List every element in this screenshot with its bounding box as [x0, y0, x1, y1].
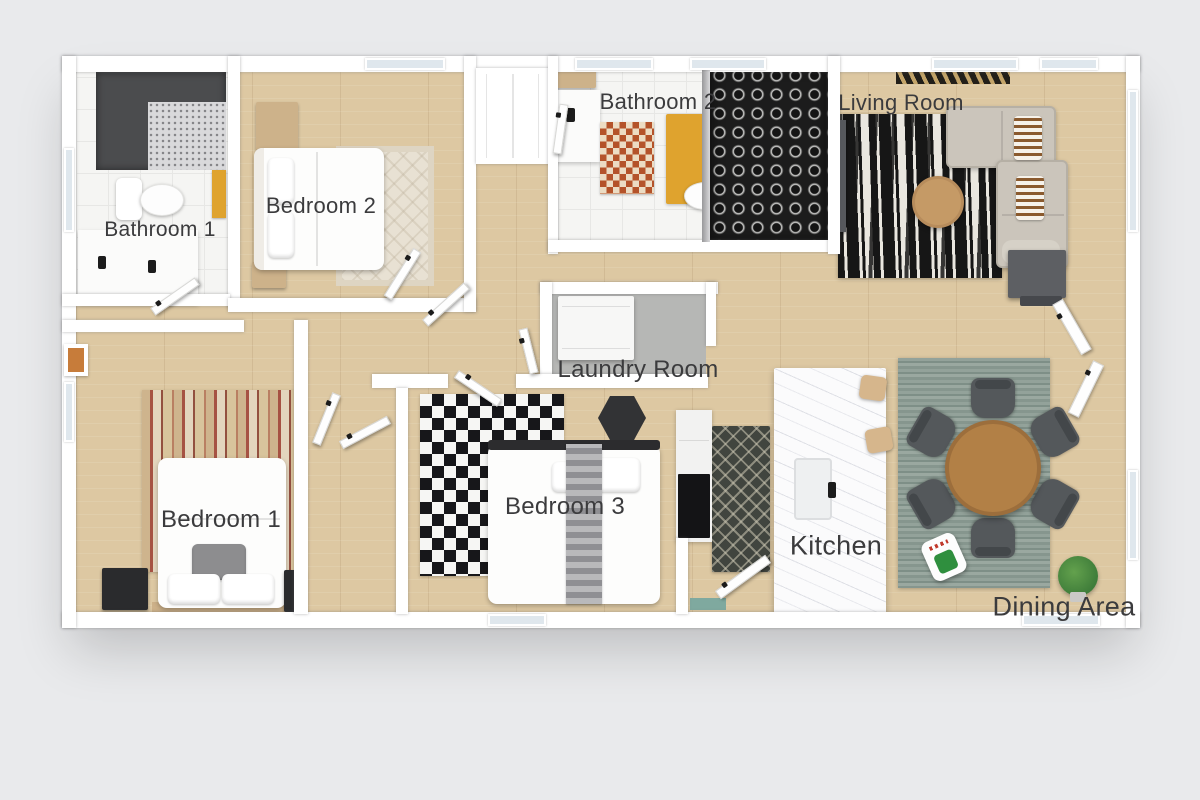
shower-1-tile-floor — [148, 102, 226, 170]
wall-outer-bottom — [62, 612, 1140, 628]
nightstand-wood — [256, 102, 298, 150]
island-sink — [794, 458, 832, 520]
high-chair-dots — [929, 539, 949, 551]
room-label-living-room: Living Room — [838, 90, 964, 116]
dining-chair — [971, 378, 1015, 418]
wall-segment — [548, 240, 838, 252]
window — [690, 58, 766, 70]
headboard — [254, 148, 264, 270]
cooktop-stove — [678, 474, 710, 538]
window — [1040, 58, 1098, 70]
bar-stool — [864, 426, 894, 454]
closet-sliding-doors — [476, 68, 552, 164]
bedroom-3-bed — [488, 444, 660, 604]
wall-segment — [228, 56, 240, 308]
accent-pillow — [1016, 176, 1044, 220]
wall-segment — [294, 320, 308, 614]
shower-2-patterned — [710, 66, 828, 242]
washer-dryer — [558, 296, 634, 360]
dining-chair — [971, 518, 1015, 558]
dining-table-round — [945, 420, 1041, 516]
wall-segment — [828, 56, 840, 254]
floor-plan-render: Bathroom 1 Bedroom 2 Bathroom 2 Living R… — [0, 0, 1200, 800]
wall-art — [64, 344, 88, 376]
wall-segment — [62, 294, 230, 306]
wall-segment — [548, 56, 558, 254]
pillow — [222, 574, 274, 604]
wall-segment — [676, 538, 688, 614]
room-label-bedroom-1: Bedroom 1 — [161, 506, 281, 534]
room-label-bedroom-2: Bedroom 2 — [266, 193, 376, 219]
faucet-icon — [98, 256, 106, 269]
wall-segment — [540, 282, 552, 382]
kitchen-runner-rug — [712, 426, 770, 572]
potted-plant — [1058, 556, 1098, 596]
towel-yellow — [212, 170, 226, 218]
wall-segment — [396, 388, 408, 614]
accent-pillow — [1014, 116, 1042, 160]
window — [365, 58, 445, 70]
toilet-1-bowl — [140, 184, 184, 216]
wall-segment — [464, 56, 476, 312]
bath-mat-orange — [600, 122, 654, 194]
window — [64, 148, 74, 232]
room-label-bathroom-1: Bathroom 1 — [104, 218, 216, 242]
wall-segment — [706, 282, 716, 346]
tv-cabinet — [1008, 250, 1066, 298]
wall-outer-left — [62, 56, 76, 628]
room-label-kitchen: Kitchen — [790, 531, 882, 562]
faucet-icon — [148, 260, 156, 273]
room-label-bedroom-3: Bedroom 3 — [505, 493, 625, 521]
room-label-dining-area: Dining Area — [993, 592, 1136, 623]
sliding-glass-door — [488, 614, 546, 626]
toilet-1-tank — [116, 178, 142, 220]
window — [1128, 470, 1138, 560]
throw-blanket — [566, 444, 602, 604]
window — [932, 58, 1018, 70]
window — [64, 382, 74, 442]
entry-doormat-teal — [690, 598, 726, 610]
wall-segment — [372, 374, 448, 388]
nightstand-dark — [102, 568, 148, 610]
window — [1128, 90, 1138, 232]
high-chair-seat — [933, 548, 959, 574]
bar-stool — [858, 374, 887, 401]
pillow — [168, 574, 220, 604]
window — [575, 58, 653, 70]
room-label-laundry-room: Laundry Room — [557, 356, 718, 384]
wall-segment — [540, 282, 718, 294]
faucet-icon — [828, 482, 836, 498]
room-label-bathroom-2: Bathroom 2 — [600, 89, 717, 115]
coffee-table-round — [912, 176, 964, 228]
wall-segment — [62, 320, 244, 332]
